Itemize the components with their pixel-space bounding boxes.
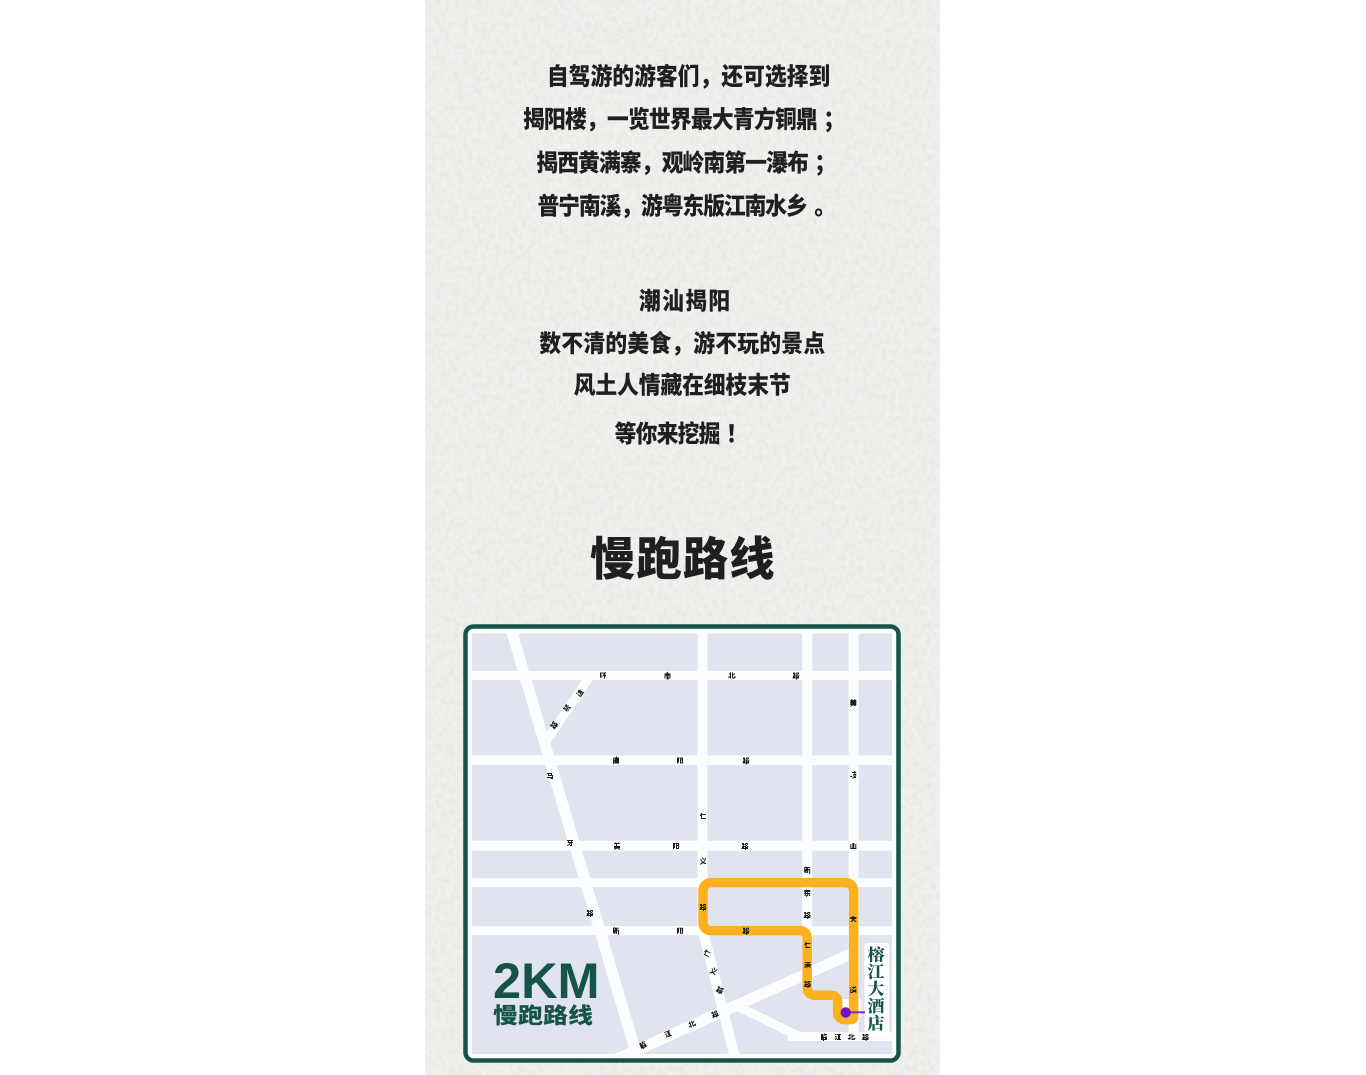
svg-text:2KM: 2KM xyxy=(493,952,600,1009)
